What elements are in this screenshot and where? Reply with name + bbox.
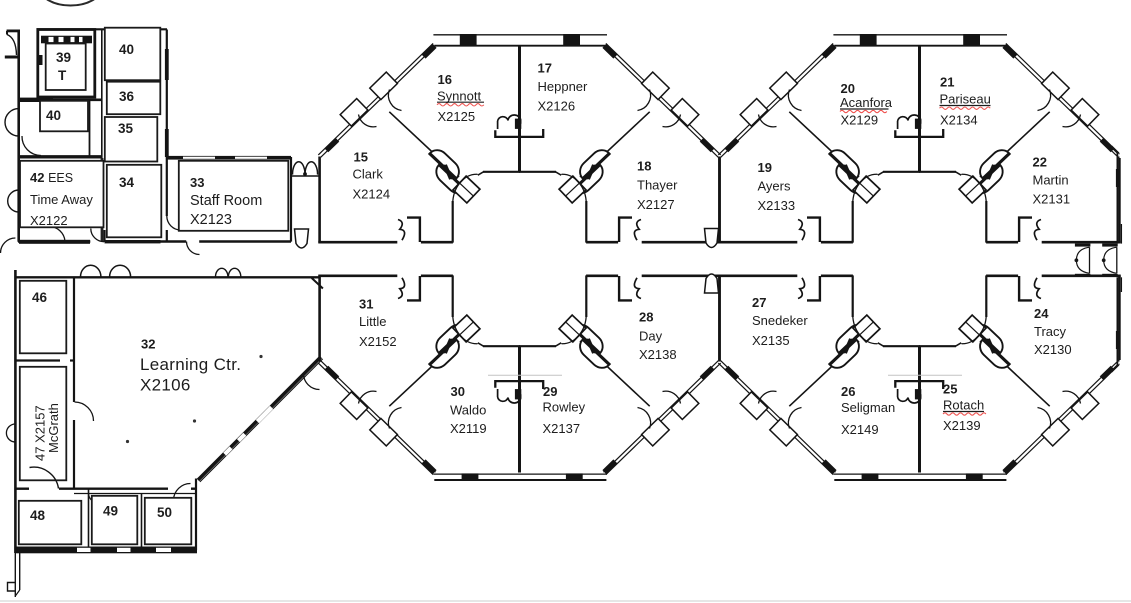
- svg-text:15: 15: [354, 150, 368, 165]
- svg-text:Rotach: Rotach: [943, 398, 984, 413]
- svg-text:16: 16: [438, 72, 452, 87]
- svg-text:X2133: X2133: [758, 198, 796, 213]
- svg-text:33: 33: [190, 175, 204, 190]
- svg-text:X2152: X2152: [359, 334, 397, 349]
- svg-text:X2127: X2127: [637, 197, 675, 212]
- svg-text:X2134: X2134: [940, 113, 978, 128]
- svg-text:49: 49: [103, 504, 118, 519]
- svg-text:Seligman: Seligman: [841, 400, 895, 415]
- svg-text:Synnott: Synnott: [437, 89, 481, 104]
- svg-text:Staff Room: Staff Room: [190, 193, 262, 209]
- svg-text:Clark: Clark: [353, 167, 384, 182]
- svg-text:X2149: X2149: [841, 422, 879, 437]
- svg-text:X2106: X2106: [140, 376, 191, 395]
- svg-text:30: 30: [451, 384, 465, 399]
- svg-text:34: 34: [119, 175, 135, 190]
- svg-text:18: 18: [637, 159, 651, 174]
- svg-text:X2137: X2137: [543, 421, 581, 436]
- svg-text:Tracy: Tracy: [1034, 324, 1067, 339]
- svg-text:50: 50: [157, 505, 172, 520]
- svg-text:19: 19: [758, 160, 772, 175]
- svg-text:35: 35: [118, 121, 134, 136]
- svg-text:T: T: [58, 68, 67, 83]
- svg-text:25: 25: [943, 382, 957, 397]
- svg-text:Acanfora: Acanfora: [840, 95, 893, 110]
- svg-text:Thayer: Thayer: [637, 178, 678, 193]
- svg-text:X2124: X2124: [353, 187, 391, 202]
- svg-text:Waldo: Waldo: [450, 403, 486, 418]
- svg-text:39: 39: [56, 50, 71, 65]
- svg-text:27: 27: [752, 295, 766, 310]
- svg-text:McGrath: McGrath: [46, 403, 61, 453]
- svg-text:X2125: X2125: [438, 109, 476, 124]
- svg-text:Ayers: Ayers: [758, 179, 791, 194]
- svg-text:24: 24: [1034, 306, 1049, 321]
- svg-text:Pariseau: Pariseau: [940, 92, 991, 107]
- svg-text:40: 40: [46, 108, 61, 123]
- svg-text:X2138: X2138: [639, 347, 677, 362]
- svg-text:42 EES: 42 EES: [30, 170, 73, 185]
- svg-text:36: 36: [119, 89, 135, 104]
- svg-text:X2123: X2123: [190, 212, 232, 228]
- svg-text:Heppner: Heppner: [538, 79, 589, 94]
- svg-text:26: 26: [841, 384, 855, 399]
- svg-text:Rowley: Rowley: [543, 400, 586, 415]
- svg-text:28: 28: [639, 310, 653, 325]
- svg-text:46: 46: [32, 290, 48, 305]
- svg-text:31: 31: [359, 297, 373, 312]
- svg-text:21: 21: [940, 75, 954, 90]
- svg-text:29: 29: [543, 384, 557, 399]
- svg-text:40: 40: [119, 42, 134, 57]
- svg-text:X2119: X2119: [450, 421, 487, 436]
- svg-text:X2135: X2135: [752, 333, 790, 348]
- svg-text:Little: Little: [359, 314, 386, 329]
- svg-text:Martin: Martin: [1033, 173, 1069, 188]
- svg-text:48: 48: [30, 508, 46, 523]
- svg-text:17: 17: [538, 61, 552, 76]
- svg-text:20: 20: [841, 81, 855, 96]
- svg-text:Time Away: Time Away: [30, 192, 93, 207]
- svg-text:X2122: X2122: [30, 213, 68, 228]
- svg-text:X2130: X2130: [1034, 342, 1072, 357]
- svg-text:Day: Day: [639, 329, 663, 344]
- svg-text:22: 22: [1033, 155, 1047, 170]
- svg-text:X2131: X2131: [1033, 192, 1071, 207]
- svg-text:Learning Ctr.: Learning Ctr.: [140, 355, 241, 374]
- svg-text:X2126: X2126: [538, 99, 576, 114]
- svg-text:X2139: X2139: [943, 418, 981, 433]
- svg-text:32: 32: [141, 337, 155, 352]
- svg-text:X2129: X2129: [841, 113, 879, 128]
- svg-text:Snedeker: Snedeker: [752, 313, 808, 328]
